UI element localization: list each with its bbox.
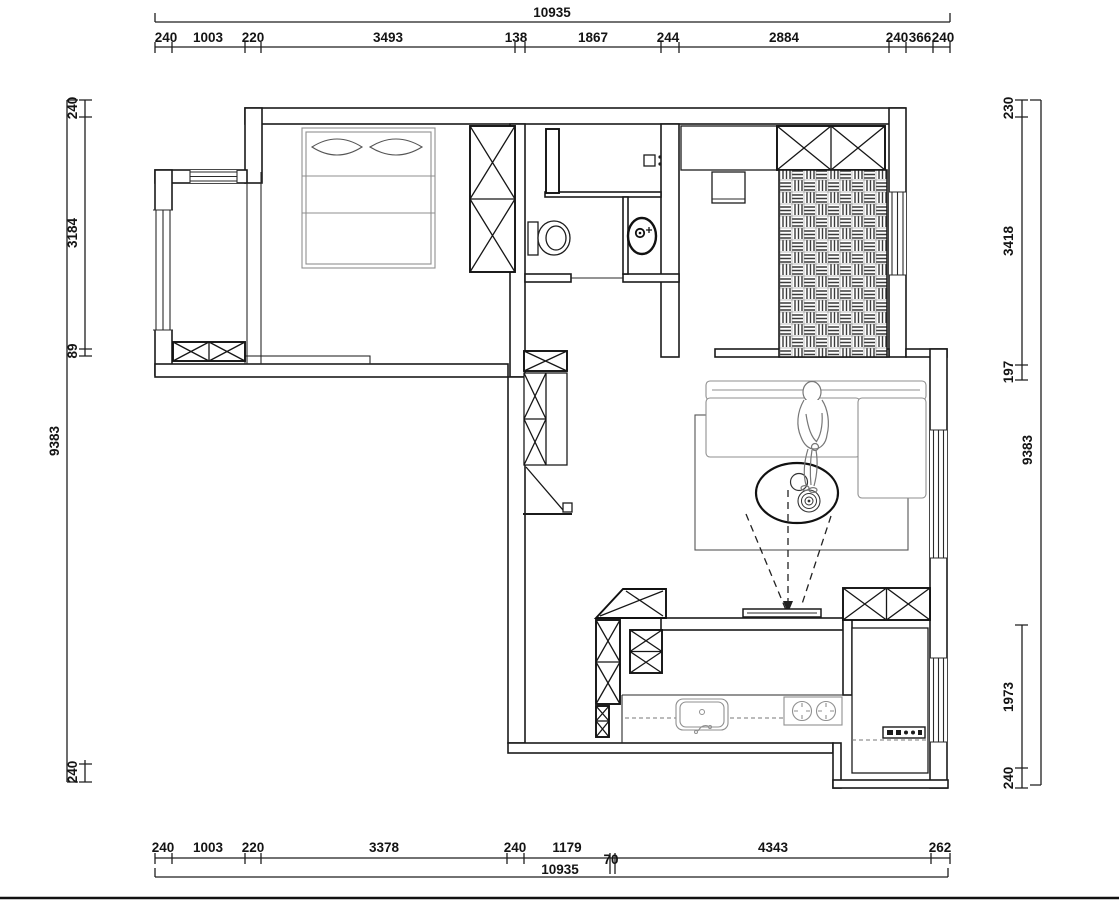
tatami-wardrobe [777,126,885,170]
dim-label: 89 [65,343,80,358]
dim-label: 220 [242,840,265,855]
dim-top-segment-line [155,42,950,53]
kitchen-sink [676,699,728,734]
shower-head-icon [644,155,662,166]
floor-plan-sheet: 10935 240 1003 220 3493 138 1867 244 288… [0,0,1119,902]
kitchen-counter [622,695,843,743]
tv [743,609,821,617]
living-wardrobe [843,588,930,620]
dim-label: 197 [1001,361,1016,384]
balcony-cabinet [173,342,245,361]
wall-bottom-kitchen [508,743,833,753]
window-balcony-top [190,170,237,183]
dim-label: 240 [1001,767,1016,790]
appliance-bar [883,727,925,738]
utility-room [852,628,928,773]
dim-label: 230 [1001,97,1016,120]
dim-right-top-line [1015,100,1028,380]
dim-label: 244 [657,30,680,45]
dim-label: 1973 [1001,681,1016,712]
dim-label: 3493 [373,30,404,45]
toilet [528,221,570,255]
living-room [695,381,930,620]
bed [302,128,435,268]
window-balcony-left [153,210,173,330]
dimension-chain-right: 9383 230 3418 197 1973 240 [1001,97,1041,790]
shower-screen [546,129,559,193]
desk-cabinet [681,126,777,170]
wall-spine-lower [508,377,525,743]
window-living-right [930,430,947,558]
dim-label: 1867 [578,30,608,45]
window-tatami-right [889,192,906,275]
dim-label: 3418 [1001,225,1016,256]
dim-label: 240 [65,761,80,784]
wall-bath-tatami [661,124,679,357]
dim-left-total: 9383 [47,425,62,456]
dim-label: 3184 [65,217,80,248]
dim-label: 1003 [193,840,224,855]
dim-label: 4343 [758,840,789,855]
dim-top-total: 10935 [533,5,571,20]
dim-right-bottom-line [1015,625,1028,788]
hall-tall-cabinet [524,373,567,465]
wall-kitchen-right [843,618,852,695]
floor-plan-drawing: 10935 240 1003 220 3493 138 1867 244 288… [0,0,1119,902]
washbasin [628,218,656,254]
entry-small-cabinet [596,706,609,737]
dim-label: 366 [909,30,932,45]
dim-right-total: 9383 [1020,434,1035,465]
stove [784,697,842,725]
dim-label: 262 [929,840,952,855]
stool-square [712,172,745,203]
window-utility-right [930,658,947,742]
wall-tv [661,618,843,630]
bedroom [173,126,515,364]
dim-label: 240 [155,30,178,45]
dim-label: 240 [932,30,955,45]
dim-label: 240 [504,840,527,855]
dim-label: 1003 [193,30,224,45]
dim-left-segment-line [79,100,92,356]
dim-label: 240 [886,30,909,45]
hall-door-leaf [523,467,572,514]
dim-label: 1179 [552,840,581,855]
dimension-chain-top: 10935 240 1003 220 3493 138 1867 244 288… [155,5,955,53]
utility-room-outline [852,628,928,773]
dim-label: 220 [242,30,265,45]
dim-label: 2884 [769,30,800,45]
dim-label: 70 [603,852,618,867]
dim-bottom-total: 10935 [541,862,579,877]
bedroom-low-cabinet [245,356,370,364]
dim-label: 240 [65,97,80,120]
hall-cabinets [523,351,572,514]
dimension-chain-bottom: 240 1003 220 3378 240 1179 70 4343 262 1… [152,840,952,877]
tatami-mat [779,170,887,357]
dim-left-outer-line [67,100,78,782]
dim-label: 240 [152,840,175,855]
hall-top-cabinet [524,351,567,371]
coffee-table-oval [756,463,838,523]
dim-left-bottom-line [79,760,92,782]
wall-bottom-right [833,780,948,788]
wall-bath-bottom-left [525,274,571,282]
tatami-room [681,126,887,357]
wall-bedroom-bottom [155,364,508,377]
dimension-chain-left: 9383 240 3184 89 240 [47,97,92,784]
entry-angled-cabinet [596,589,666,618]
bedroom-wardrobe [470,126,515,272]
wall-top [245,108,905,124]
wall-shower-divider [545,192,661,197]
entry-tall-cabinet [596,620,620,704]
kitchen-wall-cabinet [630,630,662,673]
wall-bath-bottom-right [623,274,679,282]
dim-label: 3378 [369,840,400,855]
dim-label: 138 [505,30,528,45]
bowl-rings [798,490,820,512]
